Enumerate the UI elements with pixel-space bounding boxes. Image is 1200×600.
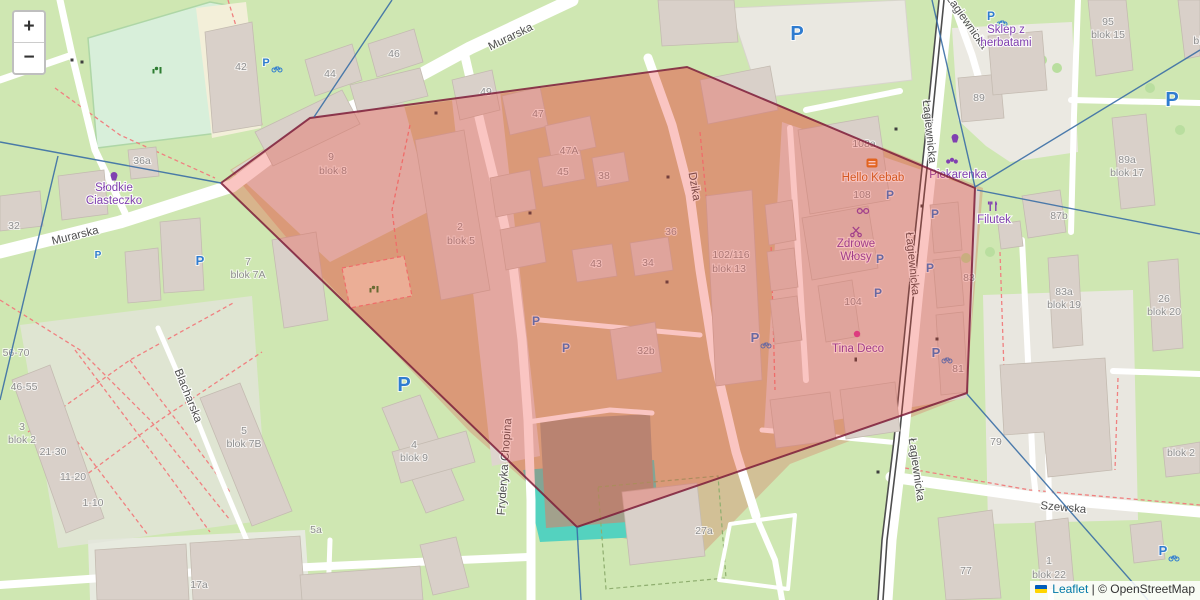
house-number-label: 56-70	[3, 347, 30, 359]
parking-icon: P	[987, 9, 995, 23]
map-canvas: PPPPPPPPPPPPPPPPP MurarskaMurarskaDzikaŁ…	[0, 0, 1200, 600]
attribution-separator: |	[1092, 582, 1095, 596]
house-number-label: blok 17	[1110, 167, 1144, 179]
house-number-label: blok 2	[8, 434, 36, 446]
parking-icon: P	[1159, 543, 1168, 558]
house-number-label: 4	[411, 439, 417, 451]
poi-label: Ciasteczko	[86, 195, 142, 207]
house-number-label: 83a	[1055, 286, 1073, 298]
house-number-label: blok 7A	[230, 269, 265, 281]
house-number-label: blok 7B	[226, 438, 261, 450]
poi-label: Sklep z	[987, 24, 1025, 36]
house-number-label: 32	[8, 220, 20, 232]
house-number-label: 77	[960, 565, 972, 577]
openstreetmap-link[interactable]: © OpenStreetMap	[1098, 582, 1195, 596]
house-number-label: 17a	[190, 579, 208, 591]
house-number-label: 1-10	[82, 497, 103, 509]
house-number-label: 46-55	[11, 381, 38, 393]
house-number-label: blok 20	[1147, 306, 1181, 318]
zoom-in-button[interactable]: +	[14, 12, 44, 43]
house-number-label: blok 19	[1047, 299, 1081, 311]
house-number-label: 7	[245, 256, 251, 268]
house-number-label: 3	[19, 421, 25, 433]
zoom-out-button[interactable]: −	[14, 43, 44, 73]
house-number-label: blok	[1193, 35, 1200, 47]
parking-icon: P	[262, 57, 269, 69]
tree	[985, 247, 995, 257]
house-number-label: 1	[1046, 555, 1052, 567]
parking-icon: P	[95, 250, 102, 261]
house-number-label: 11-20	[60, 471, 86, 483]
house-number-label: 44	[324, 68, 336, 80]
ukraine-flag-icon	[1035, 585, 1047, 593]
tree	[1175, 125, 1185, 135]
house-number-label: blok 9	[400, 452, 428, 464]
attribution-bar: Leaflet | © OpenStreetMap	[1030, 581, 1200, 600]
house-number-label: 21-30	[40, 446, 67, 458]
house-number-label: 46	[388, 48, 400, 60]
house-number-label: 89	[973, 92, 985, 104]
house-number-label: 26	[1158, 293, 1170, 305]
house-number-label: 87b	[1050, 210, 1068, 222]
house-number-label: 27a	[695, 525, 713, 537]
tree	[1145, 83, 1155, 93]
leaflet-map[interactable]: PPPPPPPPPPPPPPPPP MurarskaMurarskaDzikaŁ…	[0, 0, 1200, 600]
house-number-label: blok 2	[1167, 447, 1195, 459]
poi-label: Filutek	[977, 214, 1011, 226]
poi-label: Słodkie	[95, 182, 133, 194]
house-number-label: blok 22	[1032, 569, 1066, 581]
parking-icon: P	[196, 253, 205, 268]
poi-label: herbatami	[980, 37, 1031, 49]
parking-icon: P	[1165, 89, 1178, 111]
house-number-label: blok 15	[1091, 29, 1125, 41]
parking-icon: P	[790, 23, 803, 45]
house-number-label: 5	[241, 425, 247, 437]
house-number-label: 95	[1102, 16, 1114, 28]
tree	[1052, 63, 1062, 73]
house-number-label: 36a	[133, 155, 151, 167]
parking-icon: P	[397, 374, 410, 396]
zoom-control: + −	[12, 10, 46, 75]
leaflet-link[interactable]: Leaflet	[1052, 582, 1088, 596]
house-number-label: 42	[235, 61, 247, 73]
house-number-label: 89a	[1118, 154, 1136, 166]
house-number-label: 5a	[310, 524, 322, 536]
house-number-label: 79	[990, 436, 1002, 448]
